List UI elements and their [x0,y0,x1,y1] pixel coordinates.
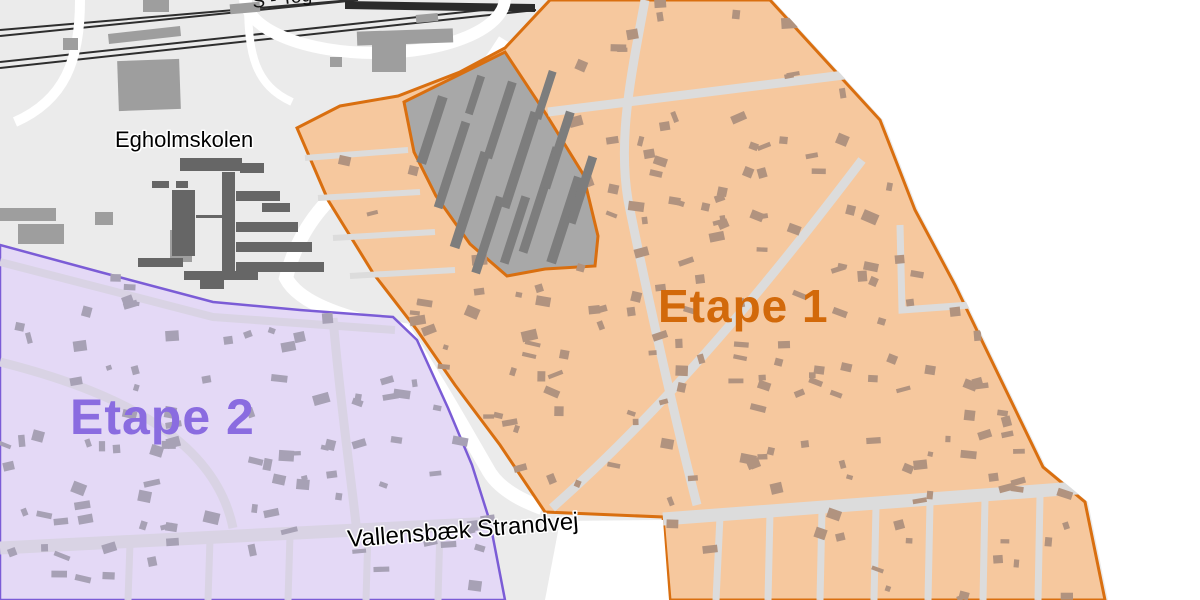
map-frame: S - Tog Egholmskolen Etape 1 Etape 2 Val… [0,0,1200,600]
map-canvas[interactable]: S - Tog Egholmskolen Etape 1 Etape 2 Val… [0,0,1200,600]
school-label: Egholmskolen [115,127,253,152]
stage1-label: Etape 1 [658,280,829,332]
stage2-label: Etape 2 [70,389,255,445]
